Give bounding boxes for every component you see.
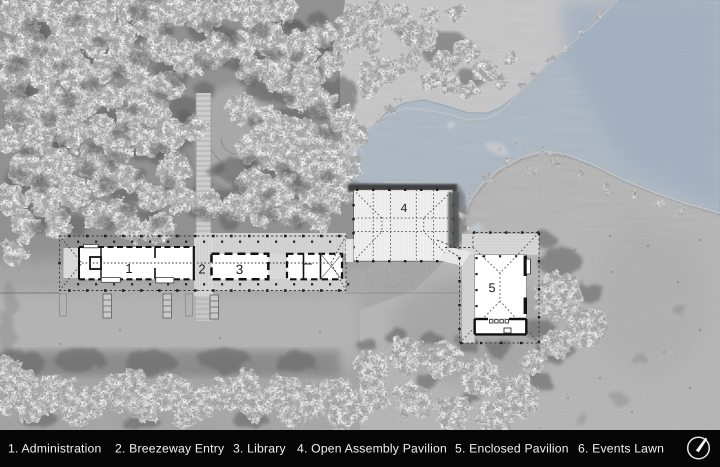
svg-text:4: 4 [401, 201, 408, 215]
svg-text:2. Breezeway Entry: 2. Breezeway Entry [115, 442, 225, 456]
svg-text:5: 5 [489, 281, 496, 295]
svg-text:2: 2 [198, 262, 205, 277]
svg-text:3: 3 [236, 262, 244, 277]
svg-text:4. Open Assembly Pavilion: 4. Open Assembly Pavilion [297, 442, 447, 456]
svg-text:1. Administration: 1. Administration [8, 442, 102, 456]
svg-text:3. Library: 3. Library [233, 442, 287, 456]
svg-text:6. Events Lawn: 6. Events Lawn [578, 442, 664, 456]
svg-text:5. Enclosed Pavilion: 5. Enclosed Pavilion [455, 442, 569, 456]
